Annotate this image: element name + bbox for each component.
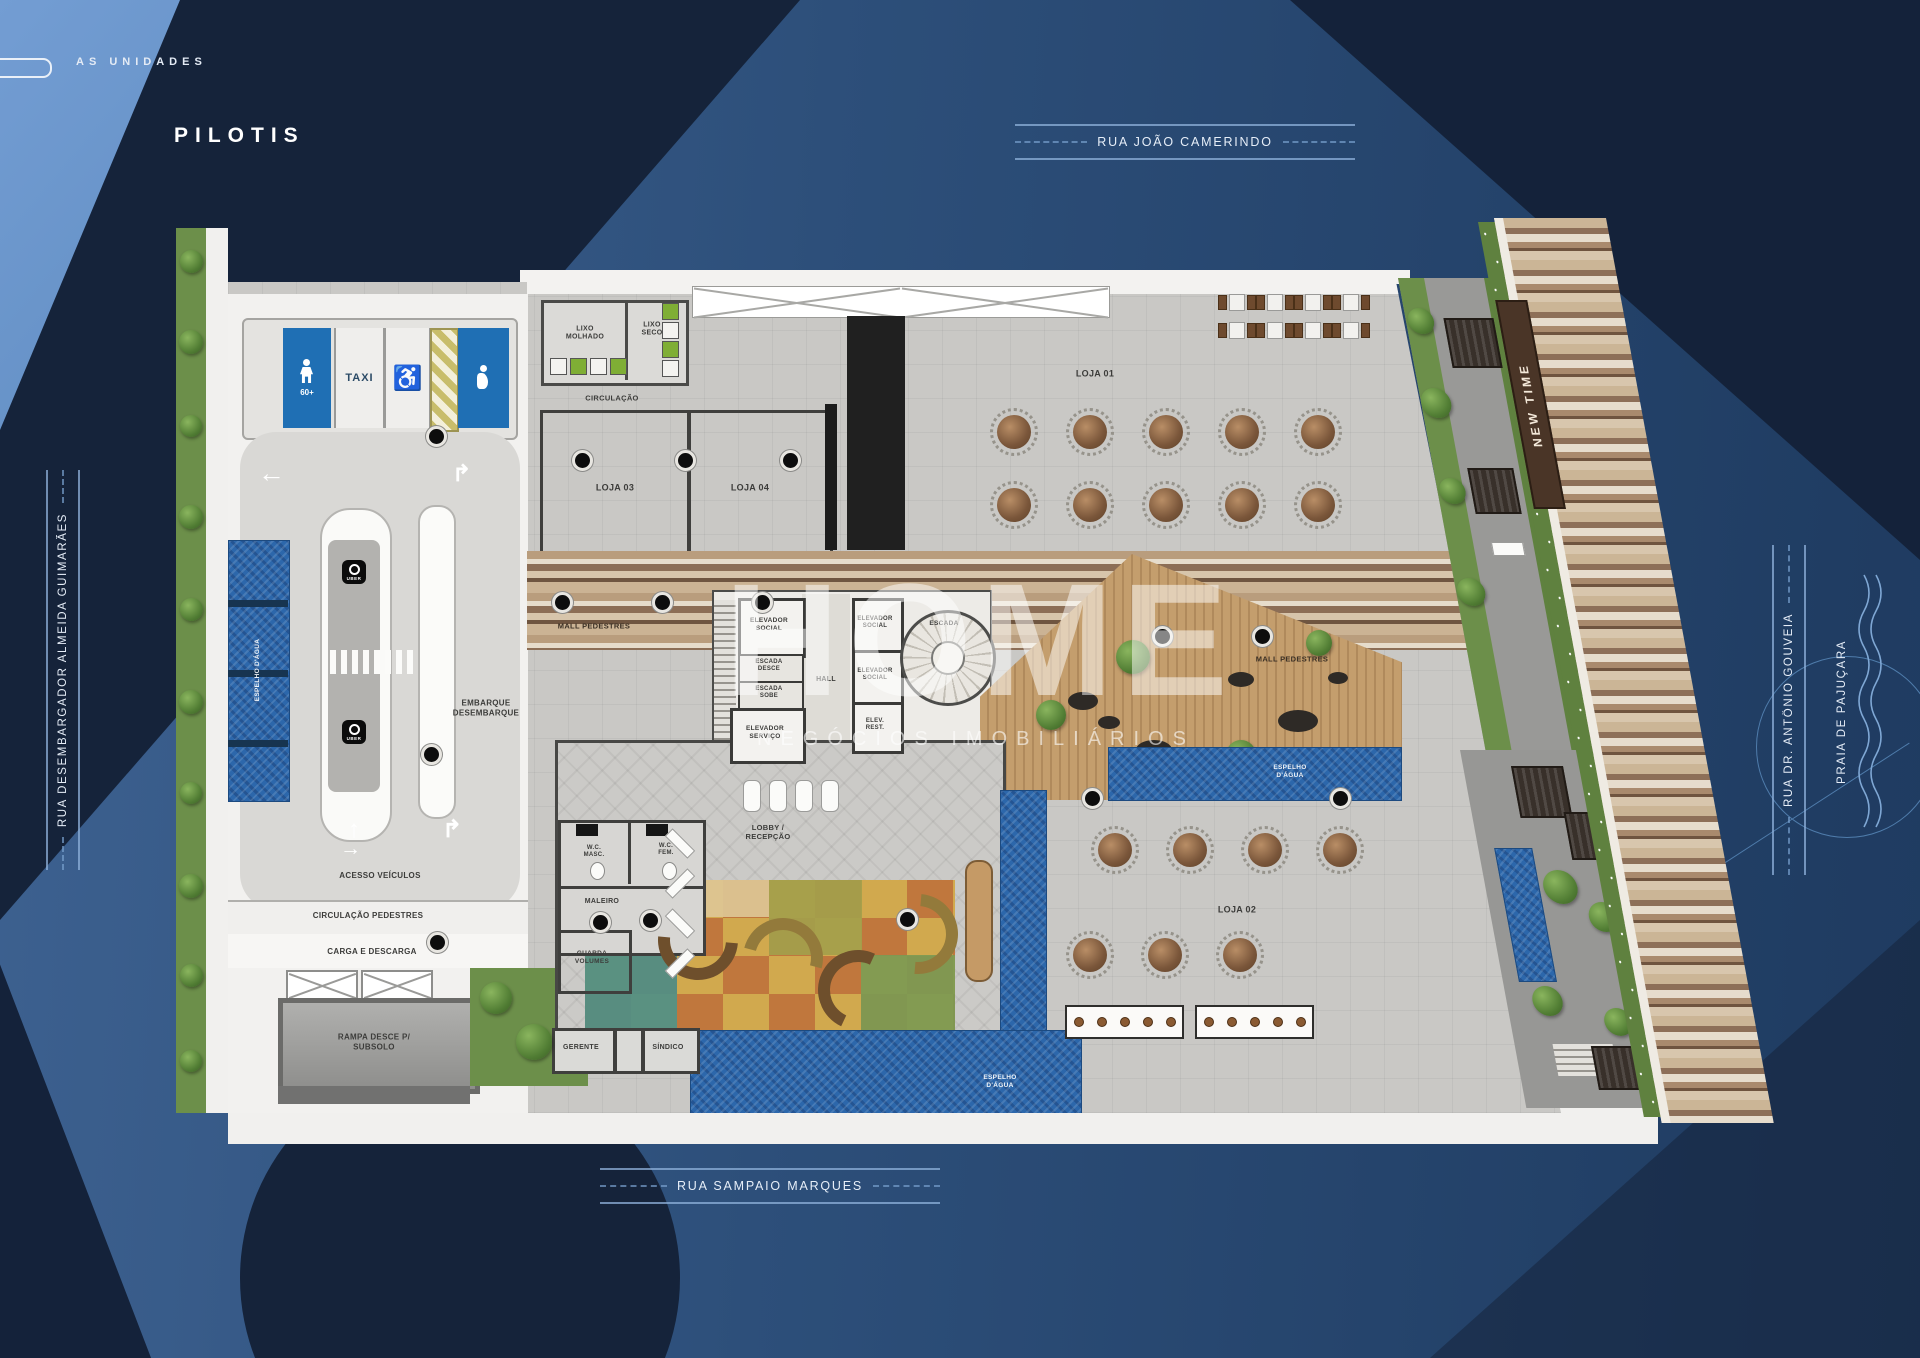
taxi-label: TAXI xyxy=(345,372,373,384)
table-chairs-icon xyxy=(1294,294,1332,311)
round-table-icon xyxy=(1248,833,1282,867)
building-sign-label: NEW TIME xyxy=(1516,363,1546,447)
lounge-chair-icon xyxy=(821,780,839,812)
tree-icon xyxy=(180,598,203,621)
road-dashes xyxy=(62,470,64,503)
road-dashes xyxy=(62,837,64,870)
column-dot xyxy=(590,912,611,933)
lounge-chair-icon xyxy=(769,780,787,812)
road-dashes xyxy=(1283,141,1355,143)
tree-icon xyxy=(179,874,203,898)
column-dot xyxy=(421,744,442,765)
column-dot xyxy=(780,450,801,471)
tree-icon xyxy=(1306,630,1332,656)
column-dot xyxy=(572,450,593,471)
wave-lines-icon xyxy=(1856,567,1886,857)
road-line xyxy=(600,1168,940,1170)
bin-icon xyxy=(590,358,607,375)
round-table-icon xyxy=(1149,488,1183,522)
tree-icon xyxy=(1530,986,1566,1016)
espelho-dagua-label: ESPELHO D'ÁGUA xyxy=(1264,764,1316,780)
bin-icon xyxy=(662,341,679,358)
column-dot xyxy=(426,426,447,447)
pergola-icon xyxy=(1511,766,1573,818)
service-corridor xyxy=(847,316,905,550)
column-dot xyxy=(897,909,918,930)
road-line xyxy=(1772,545,1774,875)
road-line xyxy=(600,1202,940,1204)
lobby-label: LOBBY / RECEPÇÃO xyxy=(736,823,800,841)
table-chairs-icon xyxy=(1332,294,1370,311)
bin-icon xyxy=(662,360,679,377)
table-chairs-icon xyxy=(1218,322,1256,339)
guarda-volumes-label: GUARDA VOLUMES xyxy=(569,950,615,966)
road-dashes xyxy=(1788,817,1790,875)
hatched-strip xyxy=(430,328,459,432)
round-table-icon xyxy=(1173,833,1207,867)
wall xyxy=(825,404,837,550)
bin-icon xyxy=(550,358,567,375)
street-sign-right: RUA DR. ANTÔNIO GOUVEIA xyxy=(1772,545,1806,875)
espelho-dagua-label: ESPELHO D'ÁGUA xyxy=(974,1074,1026,1090)
page-title: PILOTIS xyxy=(174,124,305,148)
pool-walkway xyxy=(228,740,288,747)
table-chairs-icon xyxy=(1256,322,1294,339)
arrow-turn-icon: ↱ xyxy=(452,462,471,485)
watermark-tagline: NEGÓCIOS IMOBILIÁRIOS xyxy=(757,728,1195,751)
loading-dock xyxy=(361,970,433,1000)
watermark-brand: HOME xyxy=(724,560,1236,720)
senior-parking-bay: 60+ xyxy=(283,328,331,428)
road-dashes xyxy=(1015,141,1087,143)
mall-pedestres-label: MALL PEDESTRES xyxy=(558,622,630,631)
street-name-right: RUA DR. ANTÔNIO GOUVEIA xyxy=(1783,613,1795,807)
reflecting-pool-deck xyxy=(1108,747,1402,801)
toilet-icon xyxy=(590,862,605,880)
loja-01-label: LOJA 01 xyxy=(1076,369,1114,380)
street-sign-bottom: RUA SAMPAIO MARQUES xyxy=(600,1168,940,1204)
loja-02-label: LOJA 02 xyxy=(1218,905,1256,916)
marquee-brace xyxy=(693,287,901,317)
taxi-bay: TAXI xyxy=(334,328,385,428)
stone-icon xyxy=(1278,710,1318,732)
embarque-label: EMBARQUE DESEMBARQUE xyxy=(447,698,525,717)
uber-ring-icon xyxy=(349,724,360,735)
food-counter xyxy=(1065,1005,1184,1039)
pergola-icon xyxy=(1467,468,1522,514)
small-room xyxy=(614,1028,644,1074)
circulacao-label: CIRCULAÇÃO xyxy=(572,394,652,403)
round-table-icon xyxy=(1301,488,1335,522)
senior-bay-label: 60+ xyxy=(300,388,314,397)
bottom-sidewalk xyxy=(228,1108,1658,1144)
tree-icon xyxy=(180,415,202,437)
pill-icon xyxy=(0,58,52,78)
table-chairs-icon xyxy=(1294,322,1332,339)
tree-icon xyxy=(179,690,203,714)
gerente-label: GERENTE xyxy=(563,1044,599,1052)
round-table-icon xyxy=(1323,833,1357,867)
loading-dock xyxy=(286,970,358,1000)
column-dot xyxy=(640,910,661,931)
road-dashes xyxy=(873,1185,940,1187)
tree-icon xyxy=(180,782,202,804)
column-dot xyxy=(652,592,673,613)
crosswalk xyxy=(330,650,413,674)
beach-name: PRAIA DE PAJUÇARA xyxy=(1836,640,1848,784)
column-dot xyxy=(675,450,696,471)
uber-label: UBER xyxy=(347,576,362,581)
street-name-top: RUA JOÃO CAMERINDO xyxy=(1097,135,1272,149)
stone-icon xyxy=(1328,672,1348,684)
column-dot xyxy=(1330,788,1351,809)
acesso-veiculos-label: ACESSO VEÍCULOS xyxy=(315,871,445,881)
food-counter xyxy=(1195,1005,1314,1039)
tree-icon xyxy=(180,250,203,273)
floor-plan-page: AS UNIDADES PILOTIS 60+ TAXI ♿ xyxy=(0,0,1920,1358)
round-table-icon xyxy=(1225,415,1259,449)
tree-icon xyxy=(179,505,203,529)
round-table-icon xyxy=(1073,415,1107,449)
round-table-icon xyxy=(997,488,1031,522)
uber-label: UBER xyxy=(347,736,362,741)
arrow-left-icon: ← xyxy=(258,460,285,487)
circulacao-pedestres-label: CIRCULAÇÃO PEDESTRES xyxy=(293,911,443,921)
table-chairs-icon xyxy=(1256,294,1294,311)
tree-icon xyxy=(1540,870,1580,904)
street-name-bottom: RUA SAMPAIO MARQUES xyxy=(677,1179,863,1193)
column-dot xyxy=(1252,626,1273,647)
arrow-turn-icon: ↱ xyxy=(442,818,462,842)
bin-icon xyxy=(610,358,627,375)
uber-icon: UBER xyxy=(342,720,366,744)
road-line xyxy=(1015,124,1355,126)
lixo-molhado-label: LIXO MOLHADO xyxy=(562,326,608,343)
round-table-icon xyxy=(1148,938,1182,972)
reflecting-pool-vertical xyxy=(1000,790,1047,1032)
round-table-icon xyxy=(1073,938,1107,972)
table-chairs-icon xyxy=(1218,294,1256,311)
round-table-icon xyxy=(997,415,1031,449)
road-dashes xyxy=(600,1185,667,1187)
median-island-pill xyxy=(418,505,456,819)
tree-icon xyxy=(516,1024,552,1060)
waste-bins xyxy=(550,358,627,375)
marquee xyxy=(692,286,1110,318)
lounge-chair-icon xyxy=(743,780,761,812)
wc-masc-label: W.C. MASC. xyxy=(579,845,609,859)
table-chairs-icon xyxy=(1332,322,1370,339)
tree-icon xyxy=(180,1050,202,1072)
pergola-icon xyxy=(1443,318,1502,368)
pregnant-person-icon xyxy=(474,365,494,391)
uber-icon: UBER xyxy=(342,560,366,584)
beach-sign: PRAIA DE PAJUÇARA xyxy=(1836,562,1886,862)
pool-walkway xyxy=(228,600,288,607)
street-sign-top: RUA JOÃO CAMERINDO xyxy=(1015,124,1355,160)
round-table-icon xyxy=(1223,938,1257,972)
lixo-seco-label: LIXO SECO xyxy=(637,322,667,339)
round-table-icon xyxy=(1149,415,1183,449)
sindico-label: SÍNDICO xyxy=(652,1044,683,1052)
loja-04-label: LOJA 04 xyxy=(731,483,769,494)
maleiro-label: MALEIRO xyxy=(585,898,619,906)
terrace-pool xyxy=(1494,848,1557,982)
road-line xyxy=(78,470,80,870)
round-table-icon xyxy=(1301,415,1335,449)
street-sign-left: RUA DESEMBARGADOR ALMEIDA GUIMARÃES xyxy=(46,470,80,870)
road-line xyxy=(1015,158,1355,160)
column-dot xyxy=(1082,788,1103,809)
arrow-right-icon: → xyxy=(340,838,361,859)
road-line xyxy=(46,470,48,870)
round-table-icon xyxy=(1225,488,1259,522)
left-sidewalk xyxy=(206,228,228,1113)
tree-icon xyxy=(480,982,512,1014)
counter-seat xyxy=(965,860,993,982)
road-line xyxy=(1804,545,1806,875)
waste-bins xyxy=(662,303,679,377)
uber-ring-icon xyxy=(349,564,360,575)
espelho-dagua-label: ESPELHO D'ÁGUA xyxy=(254,639,262,701)
mall-pedestres-label: MALL PEDESTRES xyxy=(1256,655,1328,664)
senior-person-icon xyxy=(297,359,317,385)
street-name-left: RUA DESEMBARGADOR ALMEIDA GUIMARÃES xyxy=(57,513,69,827)
bench-icon xyxy=(1491,542,1526,556)
pregnant-bay xyxy=(458,328,509,428)
nav-item-as-unidades[interactable]: AS UNIDADES xyxy=(76,56,207,68)
round-table-icon xyxy=(1098,833,1132,867)
tree-icon xyxy=(179,330,203,354)
bin-icon xyxy=(570,358,587,375)
loja-03-label: LOJA 03 xyxy=(596,483,634,494)
toilet-icon xyxy=(662,862,677,880)
wc-fem-label: W.C. FEM. xyxy=(651,843,681,857)
carga-descarga-label: CARGA E DESCARGA xyxy=(302,947,442,957)
wc-partition-wall xyxy=(628,820,631,884)
road-dashes xyxy=(1788,545,1790,603)
column-dot xyxy=(552,592,573,613)
tree-icon xyxy=(180,964,203,987)
reflecting-pool-bottom xyxy=(690,1030,1082,1115)
bin-icon xyxy=(662,303,679,320)
wheelchair-icon: ♿ xyxy=(393,364,423,393)
round-table-icon xyxy=(1073,488,1107,522)
top-sidewalk xyxy=(520,270,1410,284)
wc-fixture xyxy=(576,824,598,836)
lounge-chair-icon xyxy=(795,780,813,812)
rampa-label: RAMPA DESCE P/ SUBSOLO xyxy=(334,1032,414,1051)
ramp-edge xyxy=(278,1086,470,1104)
marquee-brace xyxy=(901,287,1109,317)
accessible-bay: ♿ xyxy=(384,328,431,428)
